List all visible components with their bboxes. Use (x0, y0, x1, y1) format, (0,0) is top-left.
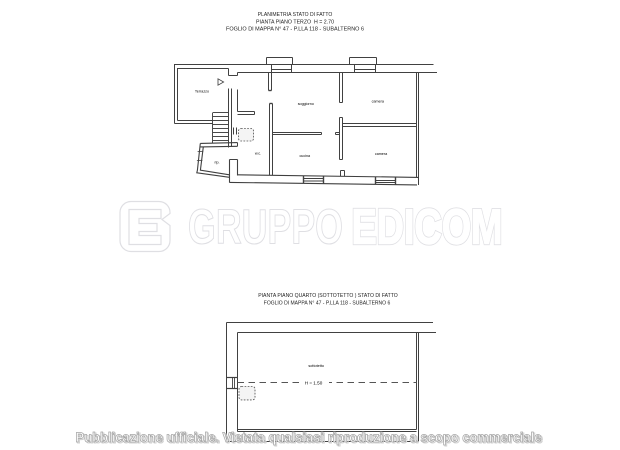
svg-text:soggiorno: soggiorno (298, 102, 314, 106)
svg-text:FOGLIO DI MAPPA N° 47 - P.LLA: FOGLIO DI MAPPA N° 47 - P.LLA 118 - SUBA… (264, 301, 391, 307)
svg-text:sottotetto: sottotetto (308, 364, 324, 368)
svg-text:FOGLIO DI MAPPA N° 47 - P.LLA: FOGLIO DI MAPPA N° 47 - P.LLA 118 - SUBA… (226, 27, 364, 33)
svg-text:cucina: cucina (299, 154, 311, 158)
svg-text:camera: camera (372, 100, 385, 104)
svg-text:EDICOM: EDICOM (352, 201, 503, 255)
svg-text:Terrazzo: Terrazzo (195, 90, 209, 94)
svg-text:Pubblicazione ufficiale. Vieta: Pubblicazione ufficiale. Vietata qualsia… (76, 429, 542, 445)
svg-text:H = 1.50: H = 1.50 (305, 380, 323, 385)
svg-text:rip.: rip. (214, 160, 219, 164)
svg-text:PIANTA PIANO TERZO H = 2.70: PIANTA PIANO TERZO H = 2.70 (256, 20, 334, 26)
svg-text:w.c.: w.c. (255, 151, 261, 155)
svg-text:camera: camera (375, 152, 388, 156)
svg-text:PIANTA PIANO QUARTO (SOTTOTETT: PIANTA PIANO QUARTO (SOTTOTETTO ) STATO … (258, 293, 398, 299)
svg-text:GRUPPO: GRUPPO (188, 201, 343, 255)
svg-text:PLANIMETRIA STATO DI FATTO: PLANIMETRIA STATO DI FATTO (258, 12, 333, 18)
